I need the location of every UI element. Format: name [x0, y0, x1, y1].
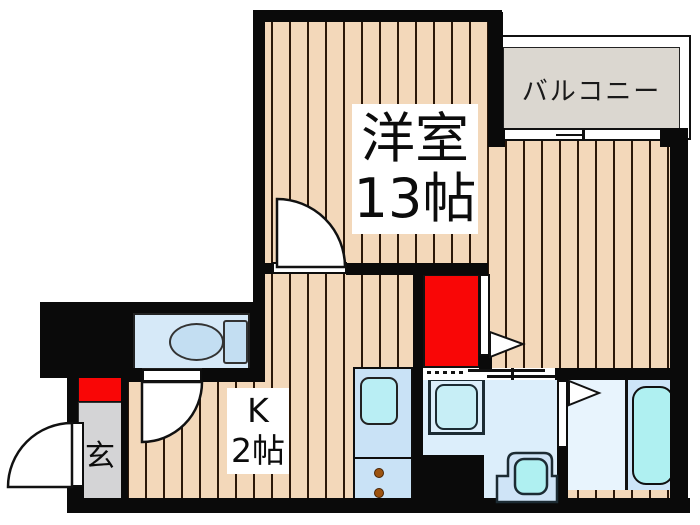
closet-door-swing-triangle-icon [490, 332, 523, 357]
main-room-name: 洋室 [361, 109, 469, 169]
mainroom-door-arc [277, 199, 345, 267]
kitchen-name: K [247, 391, 269, 431]
kitchen-size: 2帖 [231, 431, 285, 471]
door-symbols-layer [0, 0, 700, 525]
bathroom-door-swing-triangle-icon [569, 381, 599, 405]
main-room-label-box: 洋室 13帖 [352, 104, 478, 234]
main-room-size: 13帖 [354, 169, 477, 229]
entrance-door-arc [8, 423, 72, 487]
washbasin-bowl-icon [515, 459, 547, 494]
floorplan: バルコニー 玄 [0, 0, 700, 525]
kitchen-label-box: K 2帖 [227, 388, 289, 474]
toilet-door-arc [142, 382, 202, 442]
